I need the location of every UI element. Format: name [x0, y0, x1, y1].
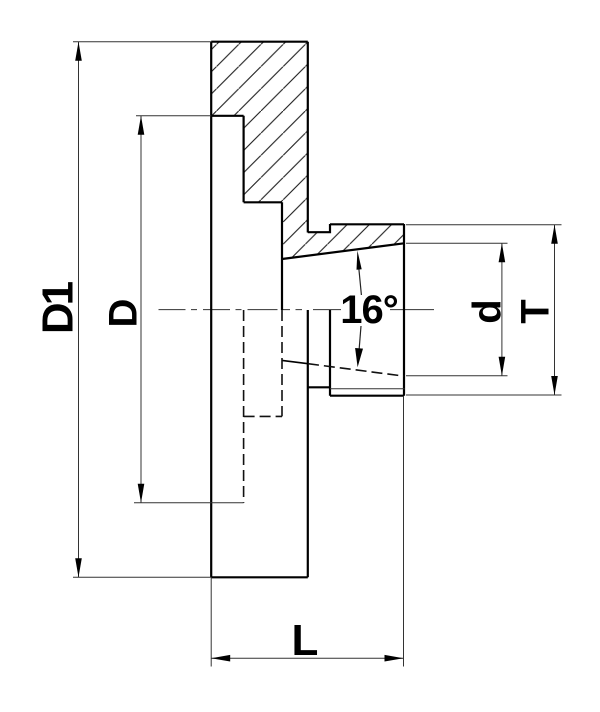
- svg-text:D1: D1: [34, 281, 83, 334]
- svg-text:T: T: [514, 299, 558, 323]
- svg-text:L: L: [292, 616, 319, 665]
- svg-text:D: D: [102, 299, 146, 328]
- svg-text:16°: 16°: [340, 288, 398, 332]
- svg-text:d: d: [466, 299, 510, 323]
